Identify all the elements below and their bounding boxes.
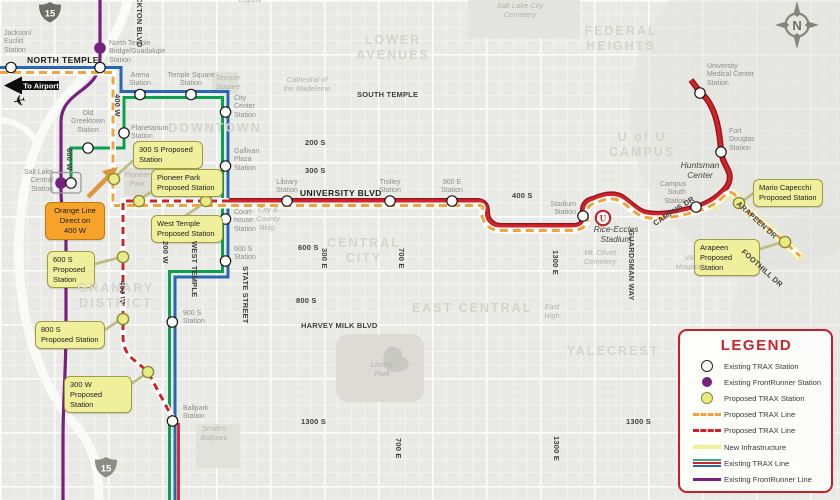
station-label-gallivan-plaza: Gallivan Plaza Station — [234, 148, 274, 173]
station-gallivan-plaza — [220, 161, 230, 171]
station-university-medical-center — [695, 88, 705, 98]
callout-300-w-proposed: 300 W Proposed Station — [64, 376, 132, 413]
landmark-label: Pioneer Park — [92, 171, 182, 189]
legend-item-proposed-trax-station: Proposed TRAX Station — [690, 390, 823, 406]
station-fort-douglas — [716, 147, 726, 157]
landmark-label: Temple Square — [183, 74, 273, 92]
callout-mario-capecchi-proposed: Mario Capecchi Proposed Station — [753, 179, 823, 207]
existing-frontrunner-line-icon — [693, 478, 721, 481]
district-label: FEDERAL HEIGHTS — [551, 24, 691, 54]
station-label-city-center: City Center Station — [234, 95, 274, 120]
station-arapeen-proposed — [779, 236, 790, 247]
legend-item-existing-frontrunner-line: Existing FrontRunner Line — [690, 471, 823, 487]
svg-text:To Airport: To Airport — [23, 81, 59, 90]
i15-shield-icon: 15 — [39, 2, 61, 23]
landmark-label: Capitol — [205, 0, 295, 5]
station-300-w-proposed — [142, 366, 153, 377]
proposed-trax-line-orange-icon — [693, 413, 721, 416]
district-label: LOWER AVENUES — [323, 33, 463, 63]
existing-trax-station-icon — [701, 360, 713, 372]
station-label-arena: Arena Station — [118, 72, 162, 89]
district-label: CENTRAL CITY — [294, 236, 434, 266]
street-label: 200 W — [160, 241, 169, 264]
street-label: 700 E — [393, 438, 402, 459]
legend-item-new-infrastructure: New Infrastructure — [690, 439, 823, 455]
street-label: STATE STREET — [240, 266, 249, 324]
street-label: 1300 S — [301, 418, 326, 427]
svg-text:U: U — [600, 213, 607, 223]
street-label: WEST TEMPLE — [189, 241, 198, 297]
legend-item-proposed-trax-line-orange: Proposed TRAX Line — [690, 407, 823, 423]
landmark-label: City & County Bldg. — [223, 206, 313, 233]
legend-title: LEGEND — [690, 337, 823, 354]
street-label: SOUTH TEMPLE — [357, 91, 418, 100]
station-label-900-e: 900 E Station — [430, 179, 474, 196]
landmark-label: VA Hospital — [644, 254, 734, 272]
station-900-s — [167, 317, 177, 327]
street-label: 1300 S — [626, 418, 651, 427]
landmark-label: Huntsman Center — [655, 160, 745, 180]
district-label: YALECREST — [543, 344, 683, 359]
landmark-label: Rice-Eccles Stadium — [571, 224, 661, 244]
landmark-label: Liberty Park — [337, 361, 427, 379]
callout-west-temple-proposed: West Temple Proposed Station — [151, 215, 223, 243]
street-label: 400 S — [512, 192, 533, 201]
legend-item-proposed-trax-line-red: Proposed TRAX Line — [690, 423, 823, 439]
district-label: U of U CAMPUS — [572, 130, 712, 160]
station-label-jackson-euclid: Jackson/ Euclid Station — [4, 30, 48, 55]
new-infrastructure-icon — [693, 445, 721, 450]
legend: LEGEND Existing TRAX Station Existing Fr… — [678, 329, 833, 493]
station-jackson-euclid — [6, 62, 16, 72]
landmark-label: East High — [507, 303, 597, 321]
station-label-salt-lake-central-frontrunner: Salt Lake Central Station — [15, 169, 53, 194]
to-airport-arrow: To Airport — [4, 77, 59, 95]
svg-text:15: 15 — [101, 464, 112, 475]
station-label-stadium: Stadium Station — [536, 201, 576, 218]
callout-800-s-proposed: 800 S Proposed Station — [35, 321, 105, 349]
station-arena — [135, 89, 145, 99]
street-label: 300 S — [305, 167, 326, 176]
callout-300-s-proposed: 300 S Proposed Station — [133, 141, 203, 169]
station-north-temple-bridge-guadalupe-frontrunner — [94, 42, 106, 54]
station-label-old-greektown: Old Greektown Station — [64, 110, 112, 135]
svg-text:15: 15 — [45, 9, 56, 20]
station-salt-lake-central — [66, 178, 76, 188]
station-old-greektown — [83, 143, 93, 153]
district-label: GRANARY DISTRICT — [46, 281, 186, 311]
station-planetarium — [119, 128, 129, 138]
station-label-fort-douglas: Fort Douglas Station — [729, 128, 773, 153]
station-salt-lake-central-frontrunner — [55, 177, 67, 189]
street-label: 800 S — [296, 297, 317, 306]
street-label: CKTON BLVD — [134, 0, 143, 47]
street-label: HARVEY MILK BLVD — [301, 322, 378, 331]
street-label: 200 S — [305, 139, 326, 148]
station-600-s-proposed — [117, 251, 128, 262]
street-label: 1300 E — [551, 436, 560, 461]
station-label-university-medical-center: University Medical Center Station — [707, 63, 771, 88]
station-label-ballpark: Ballpark Station — [183, 405, 227, 422]
station-800-s-proposed — [117, 313, 128, 324]
legend-item-existing-frontrunner-station: Existing FrontRunner Station — [690, 374, 823, 390]
station-city-center — [220, 107, 230, 117]
landmark-label: Smith's Ballpark — [169, 425, 259, 443]
legend-item-existing-trax-station: Existing TRAX Station — [690, 358, 823, 374]
street-label: NORTH TEMPLE — [27, 55, 99, 65]
proposed-trax-station-icon — [701, 392, 713, 404]
transit-map: To Airport 15 15 N U Jackson/ Euclid Sta… — [0, 0, 840, 500]
street-label: UNIVERSITY BLVD — [300, 188, 382, 198]
existing-frontrunner-station-icon — [702, 377, 712, 387]
street-label: 600 W — [64, 148, 73, 171]
station-library — [282, 196, 292, 206]
station-stadium — [578, 211, 588, 221]
station-600-s — [220, 256, 230, 266]
station-pioneer-park-proposed — [133, 195, 144, 206]
proposed-trax-line-red-icon — [693, 429, 721, 432]
district-label: DOWNTOWN — [145, 121, 285, 136]
station-west-temple-proposed — [200, 195, 211, 206]
street-label: 400 W — [112, 94, 121, 117]
landmark-label: Mt. Olivet Cemetery — [555, 249, 645, 267]
svg-text:N: N — [792, 18, 801, 33]
landmark-label: Salt Lake City Cemetery — [475, 2, 565, 20]
station-label-600-s: 600 S Station — [234, 246, 274, 263]
existing-trax-line-icon — [693, 458, 721, 468]
callout-orange-line-direct: Orange Line Direct on 400 W — [45, 202, 105, 240]
station-900-e — [447, 196, 457, 206]
station-label-900-s: 900 S Station — [183, 310, 223, 327]
legend-item-existing-trax-line: Existing TRAX Line — [690, 455, 823, 471]
landmark-label: Cathedral of the Madeleine — [262, 76, 352, 94]
station-label-north-temple-bridge-guadalupe: North Temple Bridge/Guadalupe Station — [109, 40, 193, 65]
station-trolley — [385, 196, 395, 206]
